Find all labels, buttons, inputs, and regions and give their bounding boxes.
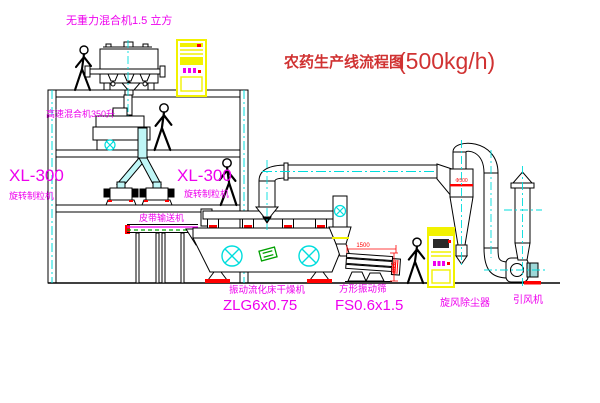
label-granulator-right-model: XL-300 — [177, 166, 232, 185]
fan-base — [524, 281, 541, 285]
label-fan: 引风机 — [513, 293, 543, 306]
control-cabinet-right — [428, 228, 454, 287]
top-frame — [203, 211, 347, 219]
label-dryer-name: 振动流化床干燥机 — [229, 284, 306, 296]
page-title-capacity: (500kg/h) — [398, 48, 495, 74]
granulator-left-machine — [104, 188, 138, 205]
control-cabinet-top — [177, 40, 206, 96]
label-screen-name: 方形振动筛 — [339, 283, 387, 295]
label-high-speed-mixer: 高速混合机350升 — [46, 108, 115, 119]
dryer-legs — [205, 272, 332, 283]
vortex-finder — [453, 152, 466, 169]
label-granulator-left-model: XL-300 — [9, 166, 64, 185]
belt-conveyor — [125, 225, 198, 284]
worker-figure-ground — [408, 238, 424, 283]
worker-figure-floor2 — [155, 104, 172, 150]
cabinet-display — [433, 239, 449, 248]
down-pipe — [138, 128, 147, 162]
dim-text-340: 340 — [389, 262, 395, 273]
cad-drawing: 无重力混合机1.5 立方 农药生产线流程图 (500kg/h) 高速混合机350… — [0, 0, 600, 403]
dryer-cover — [193, 228, 346, 238]
label-cyclone: 旋风除尘器 — [440, 296, 490, 309]
flow-diagram-canvas: 无重力混合机1.5 立方 农药生产线流程图 (500kg/h) 高速混合机350… — [0, 0, 600, 403]
dim-text-1500: 1500 — [356, 243, 370, 249]
label-dryer-model: ZLG6x0.75 — [223, 297, 297, 314]
label-granulator-left-name: 旋转制粒机 — [9, 190, 54, 201]
label-gravity-free-mixer: 无重力混合机1.5 立方 — [66, 13, 172, 27]
granulator-right-machine — [140, 188, 174, 205]
page-title: 农药生产线流程图 — [283, 53, 404, 71]
label-screen-model: FS0.6x1.5 — [335, 297, 403, 314]
dimension-1500 — [347, 245, 396, 253]
label-granulator-right-name: 旋转制粒机 — [184, 188, 229, 199]
dim-text-cyclone: Φ500 — [455, 178, 468, 184]
y-pipe — [117, 158, 161, 188]
label-belt-conveyor: 皮带输送机 — [139, 212, 184, 223]
indicator-light — [197, 44, 201, 47]
